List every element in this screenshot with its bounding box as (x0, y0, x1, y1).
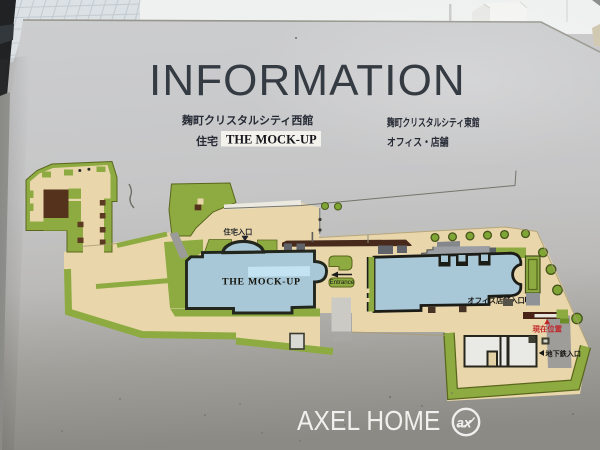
svg-text:住宅入口: 住宅入口 (224, 227, 253, 236)
svg-text:THE MOCK-UP: THE MOCK-UP (226, 133, 317, 147)
svg-text:INFORMATION: INFORMATION (149, 56, 466, 105)
svg-text:AXEL HOME: AXEL HOME (297, 404, 441, 436)
svg-text:Entrance: Entrance (330, 279, 355, 286)
svg-text:地下鉄入口: 地下鉄入口 (546, 349, 581, 358)
svg-text:現在位置: 現在位置 (533, 325, 563, 334)
svg-text:麹町クリスタルシティ西館: 麹町クリスタルシティ西館 (181, 113, 313, 127)
svg-text:オフィス店舗入口: オフィス店舗入口 (468, 296, 525, 305)
svg-text:THE MOCK-UP: THE MOCK-UP (222, 277, 301, 288)
svg-text:オフィス・店舗: オフィス・店舗 (387, 135, 449, 149)
svg-text:住宅: 住宅 (196, 134, 218, 148)
svg-text:麹町クリスタルシティ東館: 麹町クリスタルシティ東館 (386, 116, 479, 129)
